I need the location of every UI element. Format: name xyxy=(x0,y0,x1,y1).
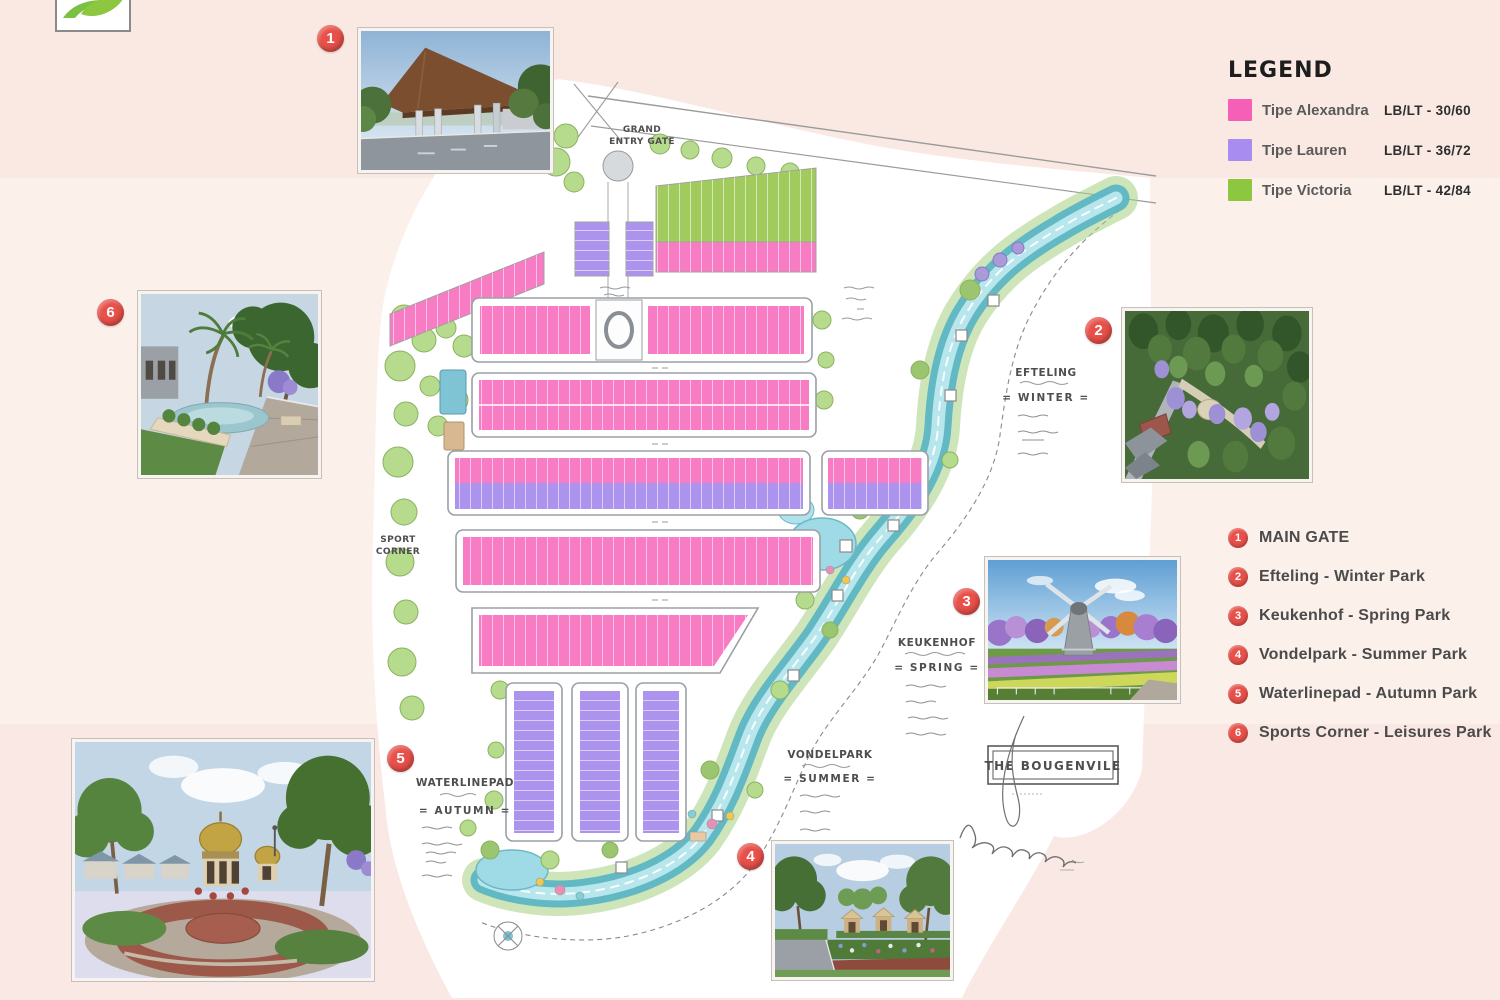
location-number-3: 3 xyxy=(1228,606,1248,626)
map-marker-1: 1 xyxy=(317,25,344,52)
waterlinepad-label: WATERLINEPAD xyxy=(416,777,514,789)
photo-main-gate-illustration xyxy=(361,31,550,170)
location-number-2: 2 xyxy=(1228,567,1248,587)
legend-row-alexandra: Tipe Alexandra LB/LT - 30/60 xyxy=(1228,99,1490,121)
location-label-efteling: Efteling - Winter Park xyxy=(1259,568,1425,586)
location-item-efteling: 2 Efteling - Winter Park xyxy=(1228,567,1496,587)
location-label-sports-corner: Sports Corner - Leisures Park xyxy=(1259,724,1492,742)
legend-swatch-victoria xyxy=(1228,179,1252,201)
location-item-sports-corner: 6 Sports Corner - Leisures Park xyxy=(1228,723,1496,743)
location-number-4: 4 xyxy=(1228,645,1248,665)
map-marker-6: 6 xyxy=(97,299,124,326)
svg-text:= AUTUMN =: = AUTUMN = xyxy=(419,805,511,817)
legend-value-victoria: LB/LT - 42/84 xyxy=(1384,183,1471,198)
location-label-main-gate: MAIN GATE xyxy=(1259,529,1349,547)
legend-value-alexandra: LB/LT - 30/60 xyxy=(1384,103,1471,118)
legend-label-victoria: Tipe Victoria xyxy=(1262,182,1384,199)
location-number-1: 1 xyxy=(1228,528,1248,548)
map-marker-3: 3 xyxy=(953,588,980,615)
svg-text:= SUMMER =: = SUMMER = xyxy=(783,773,876,785)
map-marker-4: 4 xyxy=(737,843,764,870)
brochure-canvas: GRAND ENTRY GATE SPORT CORNER EFTELING =… xyxy=(0,0,1500,1000)
photo-autumn-park xyxy=(72,739,374,981)
svg-text:= WINTER =: = WINTER = xyxy=(1002,392,1090,404)
keukenhof-label: KEUKENHOF xyxy=(898,637,976,649)
locations-list: 1 MAIN GATE 2 Efteling - Winter Park 3 K… xyxy=(1228,528,1496,762)
vondelpark-label: VONDELPARK xyxy=(787,749,873,761)
developer-logo-swoosh xyxy=(57,0,129,30)
location-label-keukenhof: Keukenhof - Spring Park xyxy=(1259,607,1450,625)
photo-spring-park xyxy=(985,557,1180,703)
legend: LEGEND Tipe Alexandra LB/LT - 30/60 Tipe… xyxy=(1228,58,1490,219)
svg-text:= SPRING =: = SPRING = xyxy=(894,662,980,674)
legend-label-alexandra: Tipe Alexandra xyxy=(1262,102,1384,119)
legend-title: LEGEND xyxy=(1228,58,1490,83)
photo-spring-park-illustration xyxy=(988,560,1177,700)
legend-value-lauren: LB/LT - 36/72 xyxy=(1384,143,1471,158)
location-item-vondelpark: 4 Vondelpark - Summer Park xyxy=(1228,645,1496,665)
location-label-waterlinepad: Waterlinepad - Autumn Park xyxy=(1259,685,1477,703)
location-item-main-gate: 1 MAIN GATE xyxy=(1228,528,1496,548)
developer-logo xyxy=(55,0,131,32)
svg-text:ENTRY GATE: ENTRY GATE xyxy=(609,137,675,147)
photo-autumn-park-illustration xyxy=(75,742,371,978)
sport-corner-label: SPORT xyxy=(380,535,416,545)
photo-summer-park xyxy=(772,841,953,980)
efteling-label: EFTELING xyxy=(1015,367,1076,379)
svg-text:CORNER: CORNER xyxy=(376,547,420,557)
legend-swatch-alexandra xyxy=(1228,99,1252,121)
location-number-5: 5 xyxy=(1228,684,1248,704)
location-item-waterlinepad: 5 Waterlinepad - Autumn Park xyxy=(1228,684,1496,704)
grand-entry-gate-label: GRAND xyxy=(623,125,661,135)
photo-winter-park xyxy=(1122,308,1312,482)
legend-row-lauren: Tipe Lauren LB/LT - 36/72 xyxy=(1228,139,1490,161)
photo-leisure-park xyxy=(138,291,321,478)
location-number-6: 6 xyxy=(1228,723,1248,743)
photo-winter-park-illustration xyxy=(1125,311,1309,479)
photo-summer-park-illustration xyxy=(775,844,950,977)
photo-leisure-park-illustration xyxy=(141,294,318,475)
location-label-vondelpark: Vondelpark - Summer Park xyxy=(1259,646,1467,664)
legend-row-victoria: Tipe Victoria LB/LT - 42/84 xyxy=(1228,179,1490,201)
photo-main-gate xyxy=(358,28,553,173)
legend-label-lauren: Tipe Lauren xyxy=(1262,142,1384,159)
legend-swatch-lauren xyxy=(1228,139,1252,161)
map-marker-2: 2 xyxy=(1085,317,1112,344)
map-marker-5: 5 xyxy=(387,745,414,772)
location-item-keukenhof: 3 Keukenhof - Spring Park xyxy=(1228,606,1496,626)
